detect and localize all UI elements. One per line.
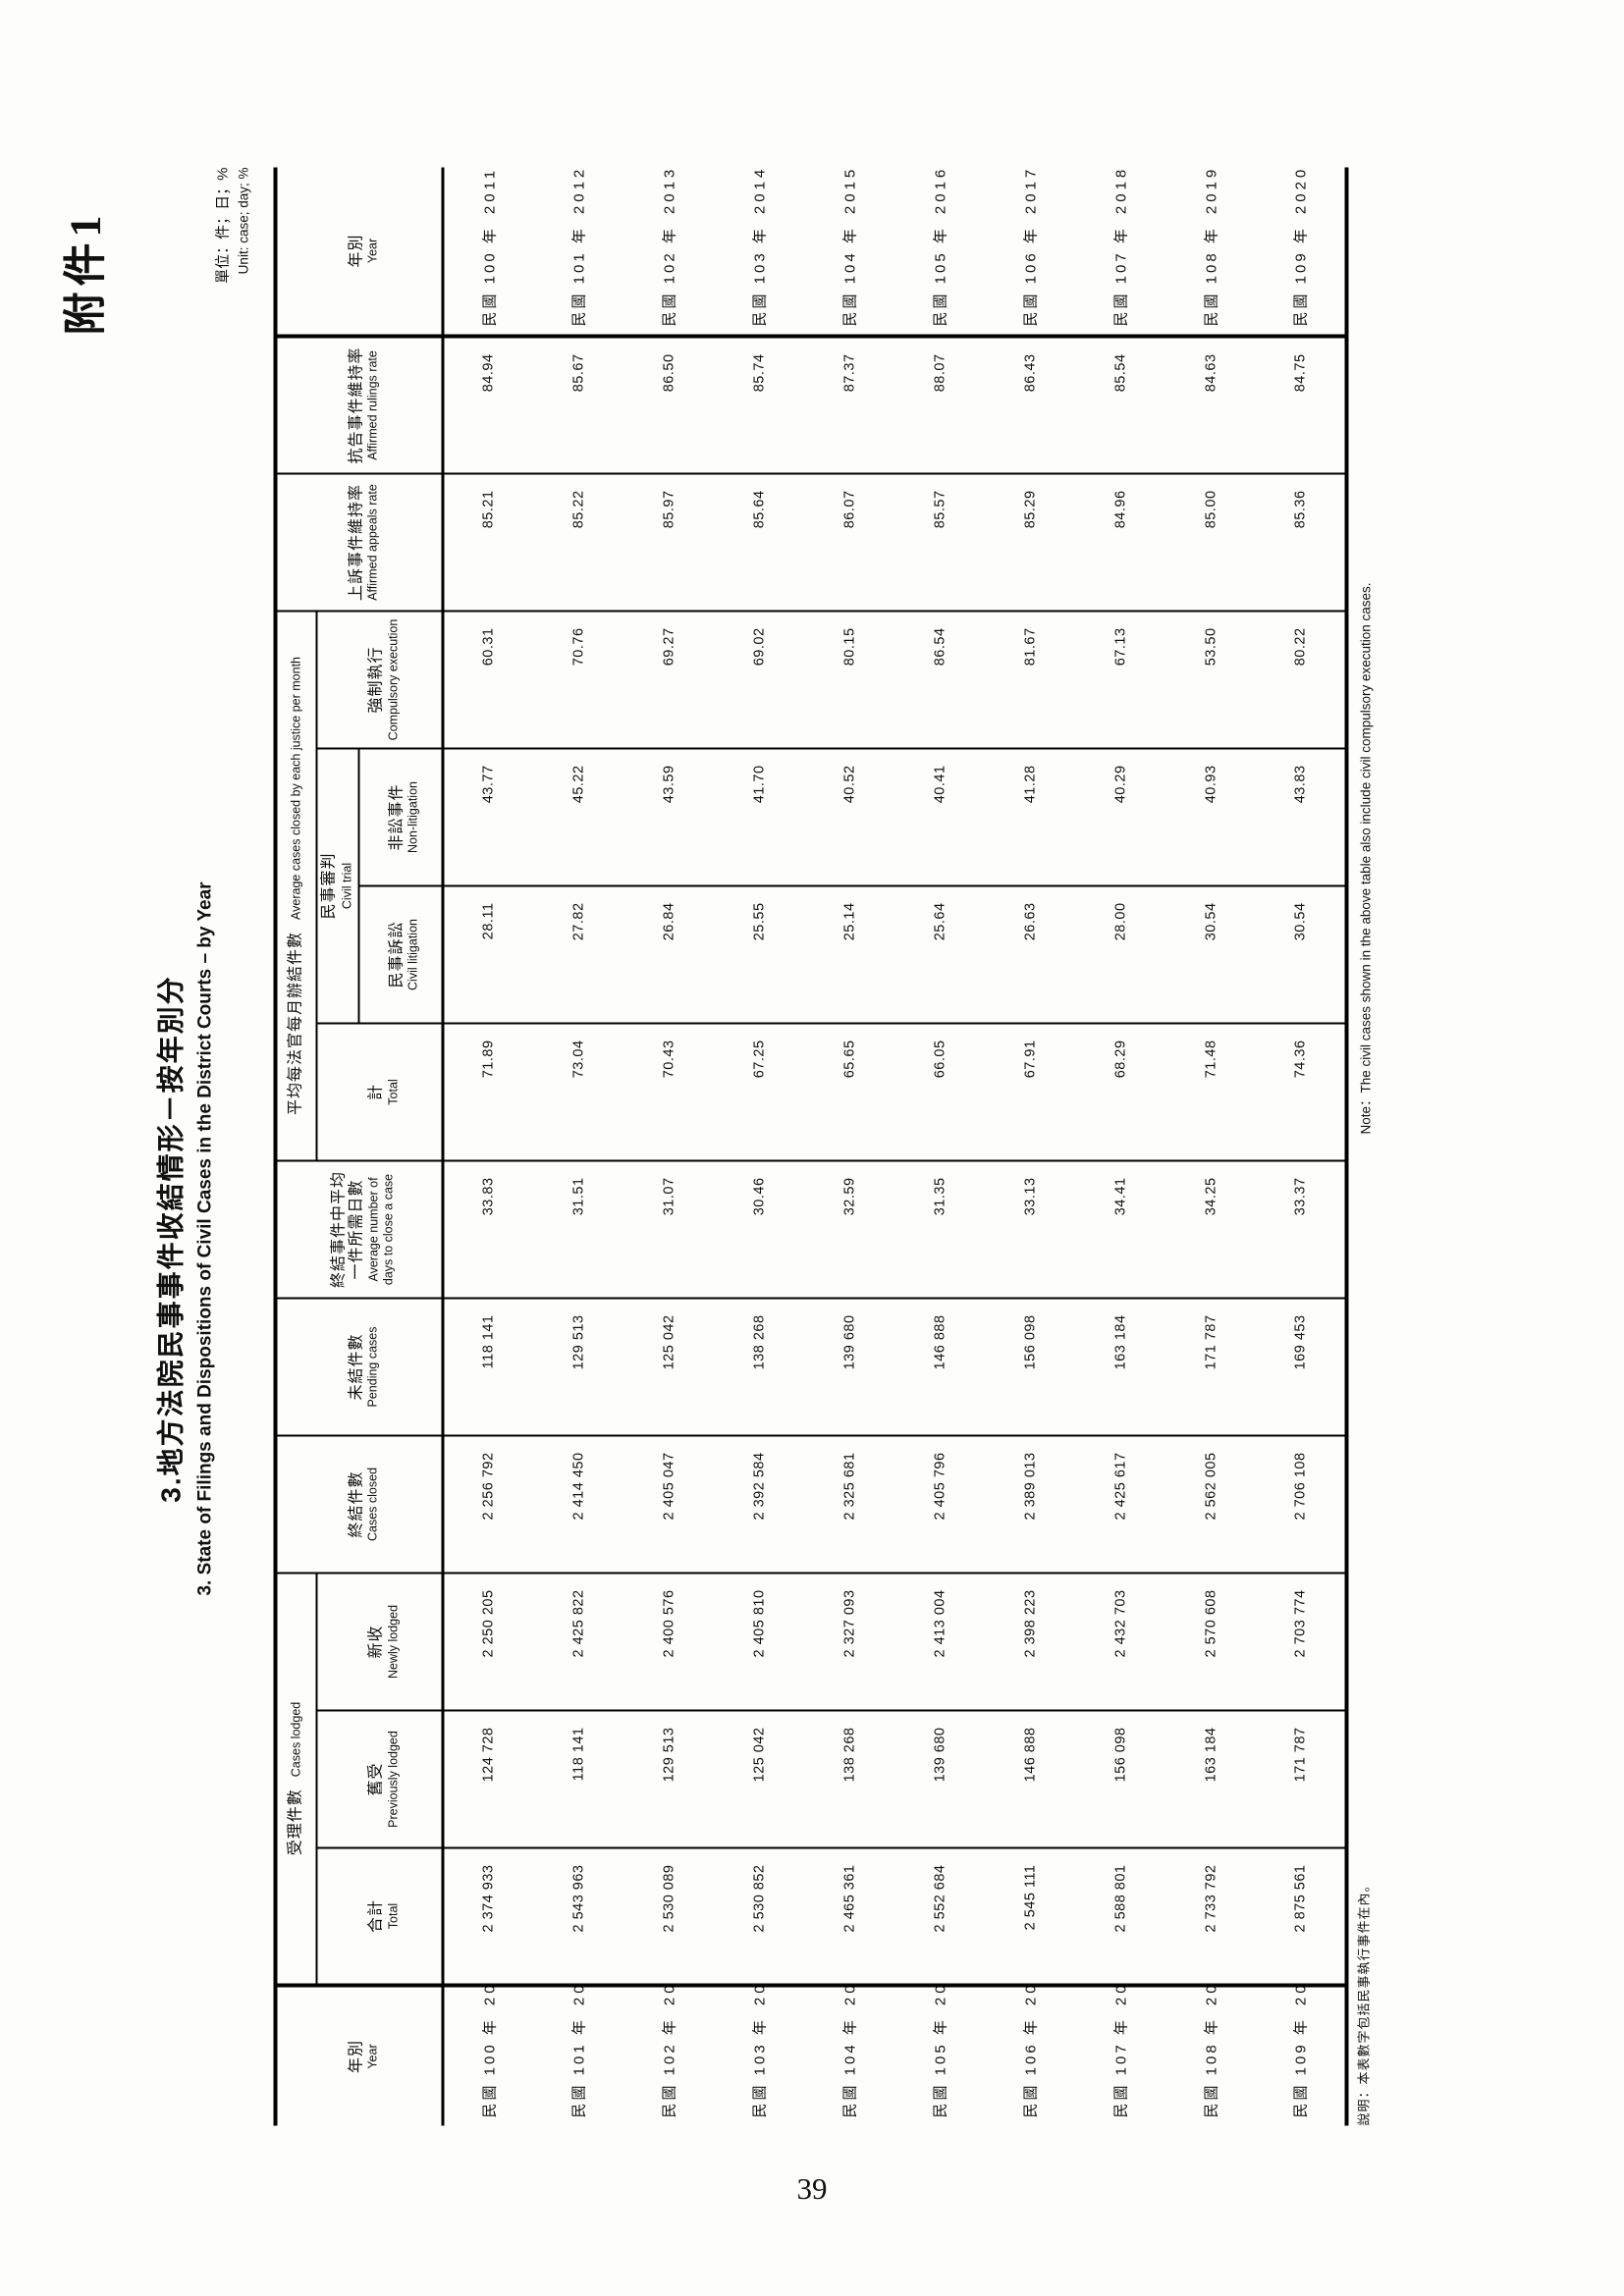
cell-cases-closed: 2 425 617 xyxy=(1075,1435,1165,1573)
cell-compulsory-execution: 86.54 xyxy=(894,611,985,748)
cell-year-right: 民國 104 年2015 xyxy=(804,167,894,336)
cell-newly-lodged: 2 425 822 xyxy=(533,1573,623,1710)
cell-total-lodged: 2 374 933 xyxy=(443,1847,533,1985)
header-civil-litigation: 民事訴訟Civil litigation xyxy=(358,885,443,1023)
cell-year-left: 民國 106 年2017 xyxy=(985,1985,1075,2125)
cell-rulings-rate: 86.50 xyxy=(623,336,714,473)
cell-newly-lodged: 2 405 810 xyxy=(714,1573,804,1710)
cell-non-litigation: 43.83 xyxy=(1256,748,1346,885)
cell-cases-closed: 2 389 013 xyxy=(985,1435,1075,1573)
cell-appeals-rate: 86.07 xyxy=(804,473,894,611)
cell-compulsory-execution: 80.15 xyxy=(804,611,894,748)
cell-total-lodged: 2 875 561 xyxy=(1256,1847,1346,1985)
table-row: 民國 103 年20142 530 852125 0422 405 8102 3… xyxy=(714,167,804,2125)
cell-avg-days: 33.37 xyxy=(1256,1160,1346,1298)
cell-compulsory-execution: 67.13 xyxy=(1075,611,1165,748)
cell-avg-total: 71.48 xyxy=(1165,1023,1256,1160)
cell-avg-days: 33.13 xyxy=(985,1160,1075,1298)
cell-total-lodged: 2 530 852 xyxy=(714,1847,804,1985)
cell-rulings-rate: 85.54 xyxy=(1075,336,1165,473)
header-cases-closed: 終結件數Cases closed xyxy=(275,1435,443,1573)
cell-rulings-rate: 87.37 xyxy=(804,336,894,473)
cell-compulsory-execution: 60.31 xyxy=(443,611,533,748)
cell-pending-cases: 125 042 xyxy=(623,1298,714,1435)
table-row: 民國 100 年20112 374 933124 7282 250 2052 2… xyxy=(443,167,533,2125)
cell-avg-total: 73.04 xyxy=(533,1023,623,1160)
table-body: 民國 100 年20112 374 933124 7282 250 2052 2… xyxy=(443,167,1346,2125)
cell-previously-lodged: 139 680 xyxy=(894,1710,985,1847)
header-previously-lodged: 舊受Previously lodged xyxy=(316,1710,443,1847)
cell-newly-lodged: 2 570 608 xyxy=(1165,1573,1256,1710)
cell-rulings-rate: 85.67 xyxy=(533,336,623,473)
cell-avg-total: 71.89 xyxy=(443,1023,533,1160)
cell-avg-total: 68.29 xyxy=(1075,1023,1165,1160)
cell-non-litigation: 40.29 xyxy=(1075,748,1165,885)
cell-pending-cases: 138 268 xyxy=(714,1298,804,1435)
cell-previously-lodged: 156 098 xyxy=(1075,1710,1165,1847)
header-cases-lodged-group: 受理件數Cases lodged xyxy=(275,1573,316,1985)
cell-avg-days: 33.83 xyxy=(443,1160,533,1298)
cell-year-left: 民國 104 年2015 xyxy=(804,1985,894,2125)
page-number: 39 xyxy=(0,2171,1624,2207)
cell-non-litigation: 41.28 xyxy=(985,748,1075,885)
cell-civil-litigation: 25.14 xyxy=(804,885,894,1023)
cell-newly-lodged: 2 327 093 xyxy=(804,1573,894,1710)
cell-year-right: 民國 108 年2019 xyxy=(1165,167,1256,336)
cell-rulings-rate: 84.75 xyxy=(1256,336,1346,473)
table-header: 年別Year 受理件數Cases lodged 終結件數Cases closed… xyxy=(275,167,443,2125)
cell-newly-lodged: 2 398 223 xyxy=(985,1573,1075,1710)
cell-total-lodged: 2 530 089 xyxy=(623,1847,714,1985)
cell-avg-days: 34.25 xyxy=(1165,1160,1256,1298)
cell-avg-total: 67.25 xyxy=(714,1023,804,1160)
cell-previously-lodged: 146 888 xyxy=(985,1710,1075,1847)
table-row: 民國 109 年20202 875 561171 7872 703 7742 7… xyxy=(1256,167,1346,2125)
document-page: 附件1 3.地方法院民事事件收結情形－按年別分 3. State of Fili… xyxy=(0,0,1624,2296)
table-row: 民國 107 年20182 588 801156 0982 432 7032 4… xyxy=(1075,167,1165,2125)
cell-previously-lodged: 171 787 xyxy=(1256,1710,1346,1847)
cell-year-left: 民國 109 年2020 xyxy=(1256,1985,1346,2125)
cell-previously-lodged: 163 184 xyxy=(1165,1710,1256,1847)
cell-year-right: 民國 109 年2020 xyxy=(1256,167,1346,336)
header-avg-total: 計Total xyxy=(316,1023,443,1160)
cell-year-left: 民國 101 年2012 xyxy=(533,1985,623,2125)
footnote-en: Note：The civil cases shown in the above … xyxy=(1354,582,1374,1134)
header-non-litigation: 非訟事件Non-litigation xyxy=(358,748,443,885)
cell-cases-closed: 2 405 047 xyxy=(623,1435,714,1573)
header-civil-trial-group: 民事審判Civil trial xyxy=(316,748,358,1023)
cell-previously-lodged: 129 513 xyxy=(623,1710,714,1847)
cell-civil-litigation: 26.63 xyxy=(985,885,1075,1023)
cell-civil-litigation: 28.00 xyxy=(1075,885,1165,1023)
cell-total-lodged: 2 733 792 xyxy=(1165,1847,1256,1985)
cell-compulsory-execution: 81.67 xyxy=(985,611,1075,748)
cell-civil-litigation: 27.82 xyxy=(533,885,623,1023)
cell-newly-lodged: 2 703 774 xyxy=(1256,1573,1346,1710)
cell-total-lodged: 2 588 801 xyxy=(1075,1847,1165,1985)
cell-rulings-rate: 88.07 xyxy=(894,336,985,473)
header-pending-cases: 未結件數Pending cases xyxy=(275,1298,443,1435)
cell-rulings-rate: 84.94 xyxy=(443,336,533,473)
cell-avg-days: 32.59 xyxy=(804,1160,894,1298)
unit-note-zh: 單位：件；日；% xyxy=(212,167,234,283)
cell-avg-days: 31.51 xyxy=(533,1160,623,1298)
cell-avg-days: 34.41 xyxy=(1075,1160,1165,1298)
cell-year-right: 民國 101 年2012 xyxy=(533,167,623,336)
cell-pending-cases: 163 184 xyxy=(1075,1298,1165,1435)
header-year-right: 年別Year xyxy=(275,167,443,336)
cell-pending-cases: 118 141 xyxy=(443,1298,533,1435)
table-row: 民國 101 年20122 543 963118 1412 425 8222 4… xyxy=(533,167,623,2125)
cell-pending-cases: 146 888 xyxy=(894,1298,985,1435)
cell-total-lodged: 2 543 963 xyxy=(533,1847,623,1985)
cell-avg-days: 30.46 xyxy=(714,1160,804,1298)
cell-appeals-rate: 85.00 xyxy=(1165,473,1256,611)
cell-cases-closed: 2 392 584 xyxy=(714,1435,804,1573)
cell-appeals-rate: 85.21 xyxy=(443,473,533,611)
page-title-zh: 3.地方法院民事事件收結情形－按年別分 xyxy=(149,259,189,2217)
cell-non-litigation: 40.52 xyxy=(804,748,894,885)
cell-year-right: 民國 102 年2013 xyxy=(623,167,714,336)
header-avg-days: 終結事件中平均一件所需日數Average number of days to c… xyxy=(275,1160,443,1298)
cell-year-left: 民國 103 年2014 xyxy=(714,1985,804,2125)
cell-appeals-rate: 85.57 xyxy=(894,473,985,611)
cell-avg-days: 31.07 xyxy=(623,1160,714,1298)
cell-compulsory-execution: 70.76 xyxy=(533,611,623,748)
cell-previously-lodged: 124 728 xyxy=(443,1710,533,1847)
cell-non-litigation: 43.77 xyxy=(443,748,533,885)
cell-civil-litigation: 26.84 xyxy=(623,885,714,1023)
header-rulings-rate: 抗告事件維持率Affirmed rulings rate xyxy=(275,336,443,473)
cell-civil-litigation: 30.54 xyxy=(1165,885,1256,1023)
cell-civil-litigation: 25.64 xyxy=(894,885,985,1023)
cell-year-left: 民國 108 年2019 xyxy=(1165,1985,1256,2125)
cell-avg-total: 67.91 xyxy=(985,1023,1075,1160)
cell-pending-cases: 156 098 xyxy=(985,1298,1075,1435)
cell-newly-lodged: 2 250 205 xyxy=(443,1573,533,1710)
cell-pending-cases: 139 680 xyxy=(804,1298,894,1435)
cell-newly-lodged: 2 400 576 xyxy=(623,1573,714,1710)
civil-cases-table: 年別Year 受理件數Cases lodged 終結件數Cases closed… xyxy=(273,167,1348,2125)
cell-civil-litigation: 28.11 xyxy=(443,885,533,1023)
unit-note: 單位：件；日；% Unit: case; day; % xyxy=(212,167,252,283)
cell-year-right: 民國 107 年2018 xyxy=(1075,167,1165,336)
header-compulsory-execution: 強制執行Compulsory execution xyxy=(316,611,443,748)
header-total-lodged: 合計Total xyxy=(316,1847,443,1985)
cell-cases-closed: 2 562 005 xyxy=(1165,1435,1256,1573)
table-row: 民國 102 年20132 530 089129 5132 400 5762 4… xyxy=(623,167,714,2125)
cell-avg-total: 66.05 xyxy=(894,1023,985,1160)
cell-newly-lodged: 2 432 703 xyxy=(1075,1573,1165,1710)
cell-appeals-rate: 85.64 xyxy=(714,473,804,611)
footnote-zh: 說明：本表數字包括民事執行事件在內。 xyxy=(1353,1878,1372,2125)
cell-total-lodged: 2 552 684 xyxy=(894,1847,985,1985)
attachment-label: 附件1 xyxy=(49,11,112,335)
cell-rulings-rate: 86.43 xyxy=(985,336,1075,473)
landscape-canvas: 附件1 3.地方法院民事事件收結情形－按年別分 3. State of Fili… xyxy=(0,0,1624,2296)
cell-avg-days: 31.35 xyxy=(894,1160,985,1298)
cell-year-right: 民國 103 年2014 xyxy=(714,167,804,336)
cell-compulsory-execution: 69.02 xyxy=(714,611,804,748)
cell-non-litigation: 40.93 xyxy=(1165,748,1256,885)
cell-appeals-rate: 85.36 xyxy=(1256,473,1346,611)
cell-previously-lodged: 138 268 xyxy=(804,1710,894,1847)
cell-avg-total: 74.36 xyxy=(1256,1023,1346,1160)
unit-note-en: Unit: case; day; % xyxy=(234,167,253,283)
header-year-left: 年別Year xyxy=(275,1985,443,2125)
header-appeals-rate: 上訴事件維持率Affirmed appeals rate xyxy=(275,473,443,611)
cell-year-left: 民國 105 年2016 xyxy=(894,1985,985,2125)
cell-total-lodged: 2 545 111 xyxy=(985,1847,1075,1985)
cell-rulings-rate: 84.63 xyxy=(1165,336,1256,473)
cell-non-litigation: 43.59 xyxy=(623,748,714,885)
cell-compulsory-execution: 69.27 xyxy=(623,611,714,748)
cell-year-left: 民國 107 年2018 xyxy=(1075,1985,1165,2125)
cell-non-litigation: 41.70 xyxy=(714,748,804,885)
cell-non-litigation: 40.41 xyxy=(894,748,985,885)
cell-year-right: 民國 106 年2017 xyxy=(985,167,1075,336)
cell-civil-litigation: 30.54 xyxy=(1256,885,1346,1023)
cell-previously-lodged: 125 042 xyxy=(714,1710,804,1847)
cell-pending-cases: 169 453 xyxy=(1256,1298,1346,1435)
cell-rulings-rate: 85.74 xyxy=(714,336,804,473)
cell-compulsory-execution: 80.22 xyxy=(1256,611,1346,748)
table-row: 民國 106 年20172 545 111146 8882 398 2232 3… xyxy=(985,167,1075,2125)
cell-appeals-rate: 85.22 xyxy=(533,473,623,611)
page-title-en: 3. State of Filings and Dispositions of … xyxy=(194,259,216,2217)
cell-year-left: 民國 100 年2011 xyxy=(443,1985,533,2125)
cell-previously-lodged: 118 141 xyxy=(533,1710,623,1847)
cell-avg-total: 70.43 xyxy=(623,1023,714,1160)
header-avg-monthly-group: 平均每法官每月辦結件數Average cases closed by each … xyxy=(275,611,316,1160)
table-row: 民國 104 年20152 465 361138 2682 327 0932 3… xyxy=(804,167,894,2125)
cell-non-litigation: 45.22 xyxy=(533,748,623,885)
table-row: 民國 108 年20192 733 792163 1842 570 6082 5… xyxy=(1165,167,1256,2125)
cell-year-right: 民國 100 年2011 xyxy=(443,167,533,336)
cell-appeals-rate: 84.96 xyxy=(1075,473,1165,611)
cell-pending-cases: 171 787 xyxy=(1165,1298,1256,1435)
cell-appeals-rate: 85.97 xyxy=(623,473,714,611)
cell-newly-lodged: 2 413 004 xyxy=(894,1573,985,1710)
cell-year-right: 民國 105 年2016 xyxy=(894,167,985,336)
cell-cases-closed: 2 256 792 xyxy=(443,1435,533,1573)
cell-cases-closed: 2 706 108 xyxy=(1256,1435,1346,1573)
cell-total-lodged: 2 465 361 xyxy=(804,1847,894,1985)
cell-cases-closed: 2 325 681 xyxy=(804,1435,894,1573)
cell-civil-litigation: 25.55 xyxy=(714,885,804,1023)
cell-compulsory-execution: 53.50 xyxy=(1165,611,1256,748)
cell-pending-cases: 129 513 xyxy=(533,1298,623,1435)
header-newly-lodged: 新收Newly lodged xyxy=(316,1573,443,1710)
cell-year-left: 民國 102 年2013 xyxy=(623,1985,714,2125)
table-row: 民國 105 年20162 552 684139 6802 413 0042 4… xyxy=(894,167,985,2125)
cell-appeals-rate: 85.29 xyxy=(985,473,1075,611)
cell-avg-total: 65.65 xyxy=(804,1023,894,1160)
cell-cases-closed: 2 405 796 xyxy=(894,1435,985,1573)
cell-cases-closed: 2 414 450 xyxy=(533,1435,623,1573)
